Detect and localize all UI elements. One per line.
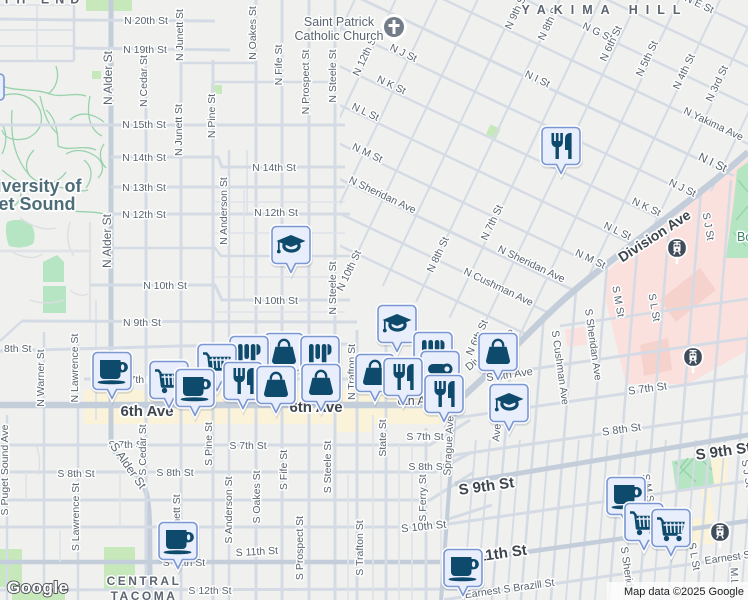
- svg-text:8th St: 8th St: [4, 343, 32, 355]
- svg-text:N Oakes St: N Oakes St: [247, 6, 259, 60]
- svg-text:State St: State St: [377, 419, 389, 456]
- svg-text:N 13th St: N 13th St: [122, 182, 166, 194]
- svg-text:S Steele St: S Steele St: [322, 441, 334, 494]
- svg-text:S 11th St: S 11th St: [235, 545, 278, 559]
- svg-text:N Junett St: N Junett St: [174, 9, 186, 61]
- svg-text:Puget Sound: Puget Sound: [0, 194, 76, 214]
- svg-text:N 19th St: N 19th St: [123, 44, 167, 56]
- svg-text:N Anderson St: N Anderson St: [218, 177, 230, 245]
- svg-text:S Trafton St: S Trafton St: [354, 520, 366, 576]
- svg-text:N 10th St: N 10th St: [143, 280, 187, 292]
- svg-text:CENTRAL: CENTRAL: [107, 574, 182, 588]
- svg-text:N 12th St: N 12th St: [254, 207, 298, 219]
- svg-text:S 8th St: S 8th St: [408, 461, 445, 473]
- svg-text:Map data ©2025 Google: Map data ©2025 Google: [624, 586, 744, 598]
- svg-text:Catholic Church: Catholic Church: [295, 29, 384, 43]
- svg-text:S Anderson St: S Anderson St: [223, 476, 235, 543]
- svg-text:N 10th St: N 10th St: [254, 295, 298, 307]
- svg-text:N Junett St: N Junett St: [173, 104, 185, 156]
- svg-text:S 8th St: S 8th St: [156, 467, 193, 479]
- svg-text:N Prospect St: N Prospect St: [300, 50, 312, 115]
- svg-text:N Warner St: N Warner St: [35, 349, 47, 406]
- svg-text:N Steele St: N Steele St: [327, 49, 339, 102]
- svg-text:S Puget Sound Ave: S Puget Sound Ave: [0, 424, 11, 515]
- svg-text:N Alder St: N Alder St: [101, 50, 115, 105]
- svg-text:N 14th St: N 14th St: [122, 152, 166, 164]
- svg-text:S Fife St: S Fife St: [278, 450, 290, 490]
- svg-text:N 15th St: N 15th St: [122, 119, 166, 131]
- svg-text:N Pine St: N Pine St: [206, 94, 218, 138]
- svg-text:Ave: Ave: [490, 423, 504, 442]
- svg-text:S 7th St: S 7th St: [406, 431, 443, 443]
- svg-text:S Pine St: S Pine St: [203, 422, 215, 466]
- svg-text:University of: University of: [0, 176, 83, 196]
- svg-text:N Cedar St: N Cedar St: [138, 55, 150, 107]
- svg-text:N 9th St: N 9th St: [123, 317, 161, 329]
- svg-text:N 12th St: N 12th St: [122, 209, 166, 221]
- svg-text:TACOMA: TACOMA: [111, 589, 178, 600]
- svg-text:S 7th St: S 7th St: [229, 440, 266, 452]
- svg-text:N 20th St: N 20th St: [124, 15, 168, 27]
- svg-text:S 8th St: S 8th St: [57, 468, 94, 480]
- svg-text:Bot: Bot: [737, 230, 748, 244]
- svg-text:Google: Google: [7, 578, 69, 597]
- svg-text:S Cedar St: S Cedar St: [137, 424, 149, 475]
- svg-text:S Oakes St: S Oakes St: [251, 470, 263, 523]
- svg-text:S Lawrence St: S Lawrence St: [70, 483, 82, 551]
- svg-text:TH END: TH END: [3, 0, 86, 7]
- svg-text:N Fife St: N Fife St: [273, 44, 285, 85]
- svg-text:S Prospect St: S Prospect St: [294, 516, 306, 580]
- svg-text:Saint Patrick: Saint Patrick: [304, 15, 375, 29]
- svg-text:S 12th St: S 12th St: [188, 585, 231, 597]
- svg-text:N Alder St: N Alder St: [100, 213, 114, 268]
- svg-text:S Ferry St: S Ferry St: [417, 474, 429, 521]
- svg-text:N 14th St: N 14th St: [252, 162, 296, 174]
- svg-text:N Lawrence St: N Lawrence St: [69, 333, 81, 402]
- svg-text:YAKIMA HILL: YAKIMA HILL: [522, 3, 689, 17]
